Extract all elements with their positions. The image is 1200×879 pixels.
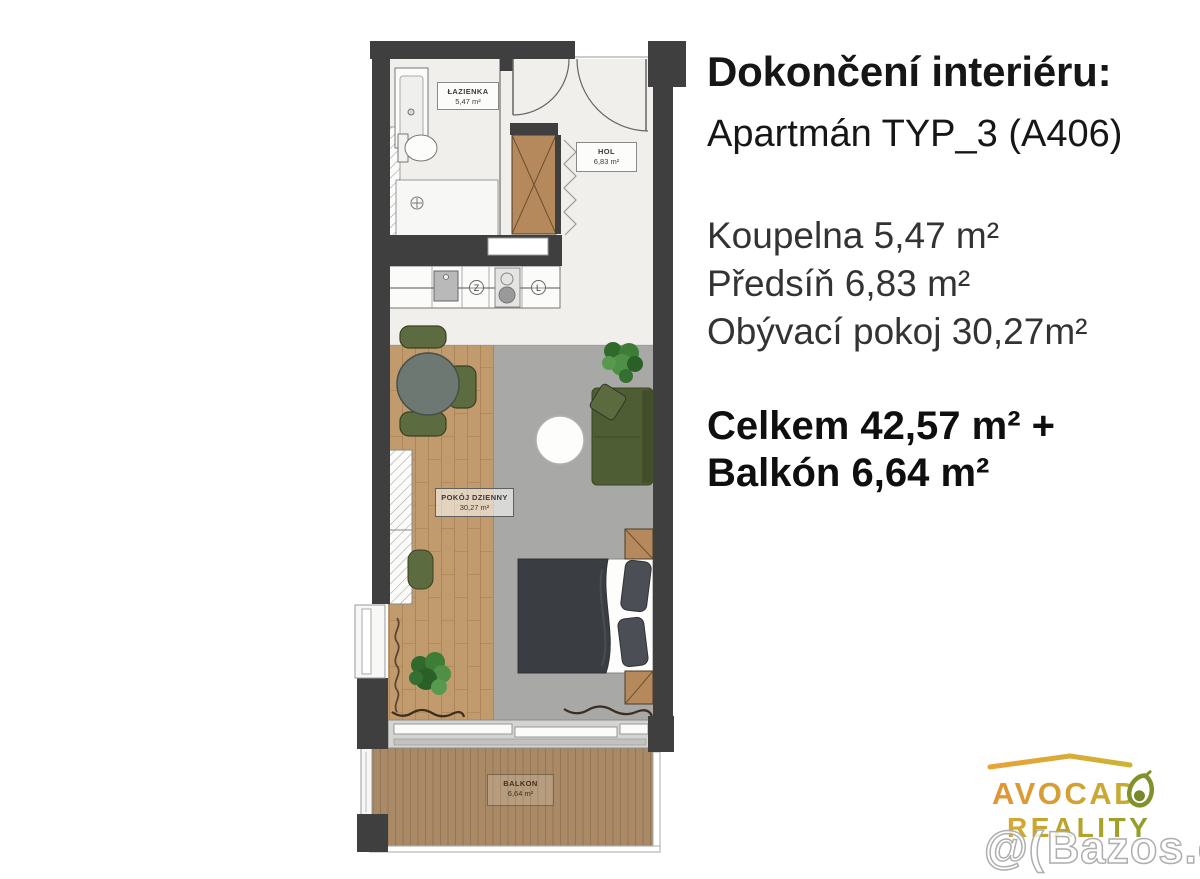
kitchen-sink [434,271,458,301]
hall-label-area: 6,83 m² [577,157,636,167]
pillow [617,617,649,668]
sofa [589,383,653,485]
balcony-label-area: 6,64 m² [488,789,553,799]
chair [400,326,446,348]
room-area-line: Obývací pokoj 30,27m² [707,308,1192,356]
nightstand [625,671,653,704]
floor-plan [350,30,695,855]
hob [495,268,520,307]
hall-label-name: HOL [577,146,636,157]
dishwasher-symbol: Z [469,280,484,295]
room-areas-list: Koupelna 5,47 m² Předsíň 6,83 m² Obývací… [707,212,1192,356]
coffee-table [536,416,584,464]
logo-word-avocado: AVOCAD [992,776,1139,811]
page-title: Dokončení interiéru: [707,46,1192,98]
desk-chair [408,550,433,589]
apartment-subtitle: Apartmán TYP_3 (A406) [707,110,1192,158]
chair [400,412,446,436]
bed [518,559,653,673]
bathroom-label-name: ŁAZIENKA [438,86,498,97]
balcony-label: BALKON 6,64 m² [487,774,554,806]
room-area-line: Koupelna 5,47 m² [707,212,1192,260]
window [355,605,385,678]
room-area-line: Předsíň 6,83 m² [707,260,1192,308]
nightstand [625,529,653,559]
listing-image: ŁAZIENKA 5,47 m² HOL 6,83 m² POKÓJ DZIEN… [0,0,1200,879]
duvet [518,559,610,673]
living-room-label-name: POKÓJ DZIENNY [436,492,513,503]
balcony-label-name: BALKON [488,778,553,789]
bazos-watermark: @(Bazos.cz [984,822,1200,874]
bazos-watermark-text: Bazos.cz [1047,822,1200,873]
total-area: Celkem 42,57 m² + Balkón 6,64 m² [707,403,1192,497]
toilet [398,134,437,162]
hall-shelf [488,238,548,255]
shower-tray [396,180,498,237]
living-room-label-area: 30,27 m² [436,503,513,513]
bazos-watermark-mark: @( [984,822,1045,873]
bathroom-label: ŁAZIENKA 5,47 m² [437,82,499,110]
roof-icon [990,756,1130,767]
info-panel: Dokončení interiéru: Apartmán TYP_3 (A40… [707,46,1192,497]
bathroom-label-area: 5,47 m² [438,97,498,107]
living-room-label: POKÓJ DZIENNY 30,27 m² [435,488,514,517]
sliding-door [388,720,652,748]
dining-table [397,353,459,415]
total-area-line: Balkón 6,64 m² [707,450,1192,497]
total-area-line: Celkem 42,57 m² + [707,403,1192,450]
pillow [620,560,652,613]
hall-label: HOL 6,83 m² [576,142,637,172]
fridge-symbol: L [531,280,546,295]
avocado-icon [1126,768,1156,808]
